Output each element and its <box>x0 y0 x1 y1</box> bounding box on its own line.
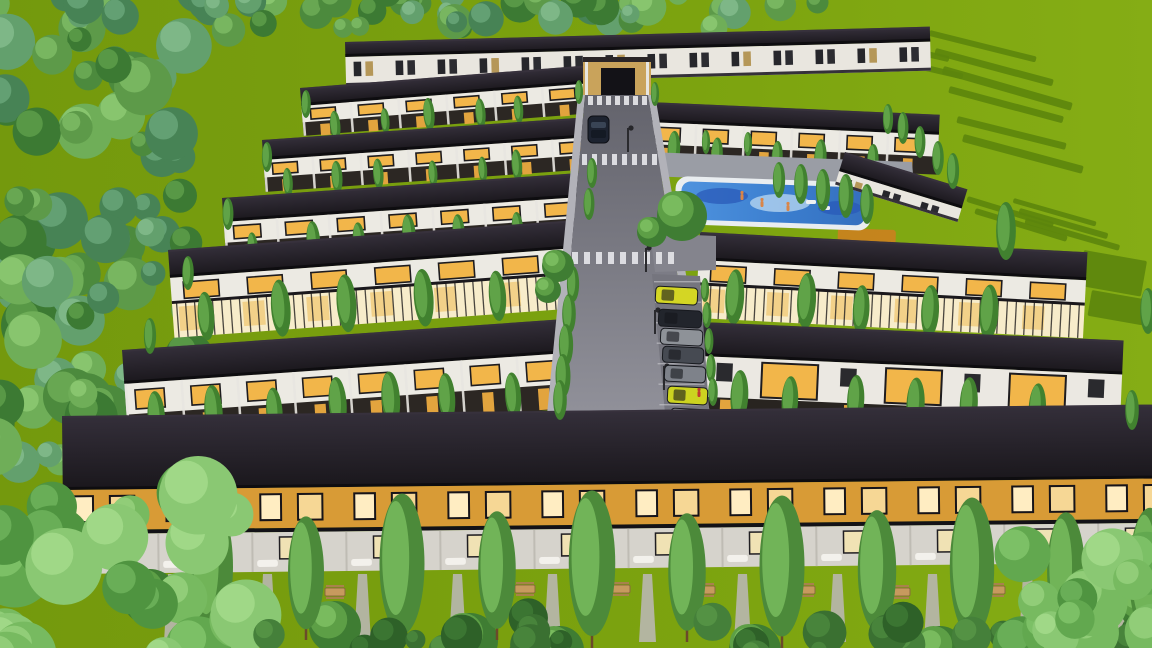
cypress-tree-highlight <box>774 163 782 192</box>
forest-tree-highlight <box>252 12 267 27</box>
forest-tree-highlight <box>1060 581 1082 603</box>
cypress-tree-highlight <box>701 279 706 298</box>
forest-tree-highlight <box>26 259 54 287</box>
cypress-tree-highlight <box>1141 290 1151 327</box>
cypress-tree-highlight <box>933 142 940 169</box>
parked-car <box>667 386 708 405</box>
cypress-tree-highlight <box>563 296 571 328</box>
forest-tree-highlight <box>1116 561 1139 584</box>
forest-tree-highlight <box>513 627 535 648</box>
person <box>786 202 789 211</box>
forest-tree-highlight <box>216 584 255 623</box>
parked-car <box>660 328 703 346</box>
poplar-tree-highlight <box>481 518 504 613</box>
forest-tree-highlight <box>448 13 460 25</box>
pool-wave <box>696 188 748 204</box>
forest-tree-highlight <box>35 37 57 59</box>
forest-tree-highlight <box>471 3 490 22</box>
cypress-tree-highlight <box>898 113 905 139</box>
parked-car <box>662 346 704 364</box>
forest-tree-highlight <box>696 605 717 626</box>
forest-tree-highlight <box>143 262 157 276</box>
aerial-render-scene <box>0 0 1152 648</box>
forest-tree-highlight <box>351 18 362 29</box>
cypress-tree-highlight <box>709 379 715 401</box>
cypress-tree-highlight <box>554 382 562 414</box>
cypress-tree-highlight <box>817 171 826 205</box>
forest-tree-highlight <box>541 2 560 21</box>
parked-car <box>655 286 698 305</box>
cypress-tree-highlight <box>702 131 707 150</box>
forest-tree-highlight <box>102 190 123 211</box>
cypress-tree-highlight <box>183 257 190 284</box>
forest-tree-highlight <box>62 113 80 131</box>
crosswalk <box>572 252 674 264</box>
forest-tree-highlight <box>402 2 415 15</box>
forest-tree-highlight <box>373 620 394 641</box>
cypress-tree-highlight <box>588 159 594 183</box>
forest-tree-highlight <box>886 604 909 627</box>
forest-tree-highlight <box>76 63 92 79</box>
cypress-tree-highlight <box>703 303 708 324</box>
driving-car <box>588 116 609 143</box>
forest-tree-highlight <box>86 508 123 545</box>
forest-tree-highlight <box>806 613 830 637</box>
forest-tree-highlight <box>38 443 52 457</box>
forest-tree-highlight <box>1086 532 1120 566</box>
forest-tree-highlight <box>444 617 467 640</box>
forest-tree-highlight <box>85 217 112 244</box>
cypress-tree-highlight <box>575 81 580 100</box>
car-body <box>664 365 706 383</box>
poplar-tree-highlight <box>671 520 694 615</box>
cypress-tree-highlight <box>948 154 956 183</box>
round-tree-highlight <box>662 195 683 216</box>
forest-tree-highlight <box>407 631 418 642</box>
forest-tree-highlight <box>172 228 190 246</box>
forest-tree-highlight <box>1058 602 1080 624</box>
forest-tree-highlight <box>165 181 184 200</box>
cypress-tree-highlight <box>744 133 749 152</box>
parking-stall-line <box>654 281 700 282</box>
car-body <box>662 346 704 364</box>
cypress-tree-highlight <box>223 199 230 225</box>
round-tree-highlight <box>538 279 549 290</box>
cypress-tree-highlight <box>707 355 713 377</box>
poplar-tree-highlight <box>290 522 312 613</box>
poplar-tree-highlight <box>762 503 789 617</box>
poplar-tree-highlight <box>572 498 600 616</box>
round-tree-highlight <box>545 253 558 266</box>
forest-tree-highlight <box>9 315 41 347</box>
cypress-tree-highlight <box>840 176 849 211</box>
forest-tree-highlight <box>89 284 107 302</box>
car-body <box>667 386 708 405</box>
forest-tree-highlight <box>622 6 632 16</box>
person <box>697 388 700 397</box>
forest-tree-highlight <box>160 21 191 52</box>
cypress-tree-highlight <box>998 204 1010 250</box>
cypress-tree-highlight <box>705 329 710 350</box>
forest-tree-highlight <box>70 381 86 397</box>
forest-tree-highlight <box>138 219 154 235</box>
parking-stall-line <box>659 384 705 385</box>
entrance-gate <box>583 57 651 100</box>
forest-tree-highlight <box>98 49 118 69</box>
poplar-tree-highlight <box>382 501 409 615</box>
poplar-tree-highlight <box>952 505 979 617</box>
cypress-tree-highlight <box>795 166 803 198</box>
cypress-tree-highlight <box>1126 392 1134 424</box>
cypress-tree-highlight <box>651 83 656 102</box>
gate-opening <box>601 68 635 98</box>
forest-tree-highlight <box>1021 583 1044 606</box>
poplar-tree-highlight <box>860 517 883 614</box>
parked-car <box>658 309 702 328</box>
forest-tree-highlight <box>955 619 977 641</box>
forest-tree-highlight <box>68 303 83 318</box>
forest-tree-highlight <box>1035 614 1055 634</box>
townhouse-community-aerial-view <box>0 0 1152 648</box>
cypress-tree-highlight <box>263 143 269 167</box>
forest-tree-highlight <box>256 621 273 638</box>
person <box>760 198 763 207</box>
forest-tree-highlight <box>31 533 73 575</box>
forest-tree-highlight <box>335 19 346 30</box>
pool-lounger <box>806 200 816 204</box>
forest-tree-highlight <box>106 564 135 593</box>
forest-tree-highlight <box>7 188 23 204</box>
cypress-tree-highlight <box>884 105 890 129</box>
forest-tree-highlight <box>551 631 564 644</box>
car-body <box>588 116 609 143</box>
person <box>740 191 743 200</box>
forest-tree-highlight <box>104 0 125 20</box>
cypress-tree-highlight <box>145 319 153 348</box>
cypress-tree-highlight <box>560 326 569 360</box>
parked-car <box>664 365 706 383</box>
cypress-tree-highlight <box>584 189 591 215</box>
cypress-tree-highlight <box>861 186 869 218</box>
cypress-tree-highlight <box>302 91 308 113</box>
forest-tree-highlight <box>149 110 178 139</box>
forest-tree-highlight <box>16 110 43 137</box>
forest-tree-highlight <box>69 29 82 42</box>
forest-tree-highlight <box>703 16 718 31</box>
forest-tree-highlight <box>165 461 208 504</box>
cypress-tree-highlight <box>915 127 922 153</box>
forest-tree-highlight <box>999 529 1030 560</box>
round-tree-highlight <box>640 219 653 232</box>
